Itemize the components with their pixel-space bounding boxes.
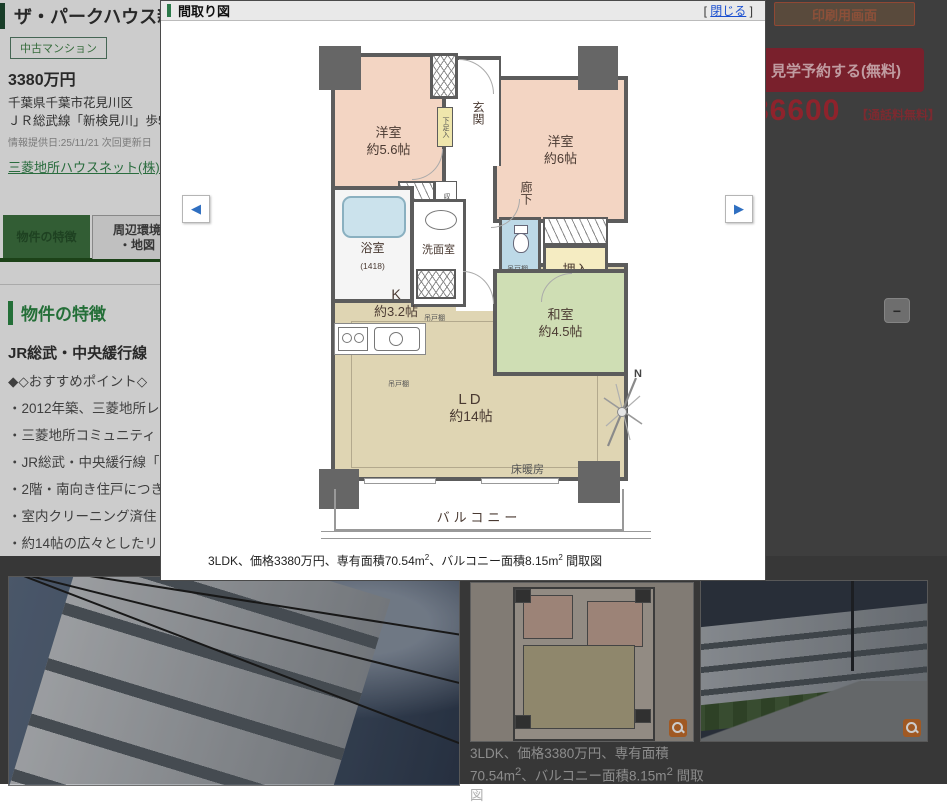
left-arrow-icon: ◀ [191, 201, 201, 217]
closet-hatched [543, 217, 608, 245]
room-label: K [391, 286, 400, 302]
caption-text: 間取図 [563, 554, 602, 568]
next-photo-button[interactable]: ▶ [725, 195, 753, 223]
burner [354, 333, 364, 343]
corridor-label: 廊下 [518, 181, 535, 205]
room-label: 玄関 [469, 101, 486, 125]
compass-icon: N [596, 366, 654, 454]
hanging-cupboard-label: 吊戸棚 [424, 313, 445, 323]
modal-accent-bar [167, 4, 171, 17]
floorplan-image: 洋室約5.6帖 洋室約6帖 玄関 下足入 廊下 収納 浴室(1418) [306, 41, 666, 546]
room-label: 下足入 [440, 117, 450, 138]
window [481, 478, 559, 484]
room-label: 浴室 [360, 241, 384, 255]
caption-text: 、バルコニー面積8.15m [429, 554, 558, 568]
sink-bowl [389, 332, 403, 346]
room-label: 洋室 [375, 125, 401, 140]
balcony-outer-line [321, 531, 651, 539]
prev-photo-button[interactable]: ◀ [182, 195, 210, 223]
floorplan-caption: 3LDK、価格3380万円、専有面積70.54m2、バルコニー面積8.15m2 … [208, 552, 602, 569]
room-size: (1418) [360, 261, 385, 271]
hanging-cupboard-label: 吊戸棚 [388, 379, 409, 389]
window [364, 478, 436, 484]
sink-icon [425, 210, 457, 230]
compass-north-label: N [634, 368, 642, 380]
modal-title: 間取り図 [178, 1, 230, 20]
pipe-shaft [430, 53, 458, 99]
room-label: 洗面室 [422, 242, 455, 259]
modal-close-area: [ 閉じる ] [704, 2, 753, 19]
bracket: [ [704, 4, 707, 18]
room-size: 約3.2帖 [374, 304, 418, 319]
bracket: ] [750, 4, 753, 18]
toilet-icon [513, 233, 529, 253]
stove-icon [338, 327, 368, 351]
modal-header: 間取り図 [ 閉じる ] [161, 1, 765, 21]
room-size: 約6帖 [544, 151, 577, 166]
balcony: バルコニー [334, 489, 624, 531]
room-label: 和室 [547, 307, 573, 322]
bathtub [342, 196, 406, 238]
burner [342, 333, 352, 343]
shoe-cabinet: 下足入 [437, 107, 453, 147]
room-label: 洋室 [547, 134, 573, 149]
pillar [578, 46, 618, 90]
balcony-label: バルコニー [437, 507, 522, 526]
caption-text: 3LDK、価格3380万円、専有面積70.54m [208, 554, 425, 568]
close-link[interactable]: 閉じる [710, 4, 746, 18]
room-label: LD [458, 391, 483, 408]
room-size: 約5.6帖 [366, 142, 410, 157]
floorplan-modal: 間取り図 [ 閉じる ] ◀ ▶ 洋室約5.6帖 洋室約6帖 玄関 [160, 0, 766, 581]
right-arrow-icon: ▶ [734, 201, 744, 217]
pillar [319, 46, 361, 90]
room-size: 約4.5帖 [538, 324, 582, 339]
floor-heating-label: 床暖房 [511, 461, 544, 477]
kitchen-sink-icon [374, 327, 420, 351]
room-size: 約14帖 [449, 408, 493, 424]
